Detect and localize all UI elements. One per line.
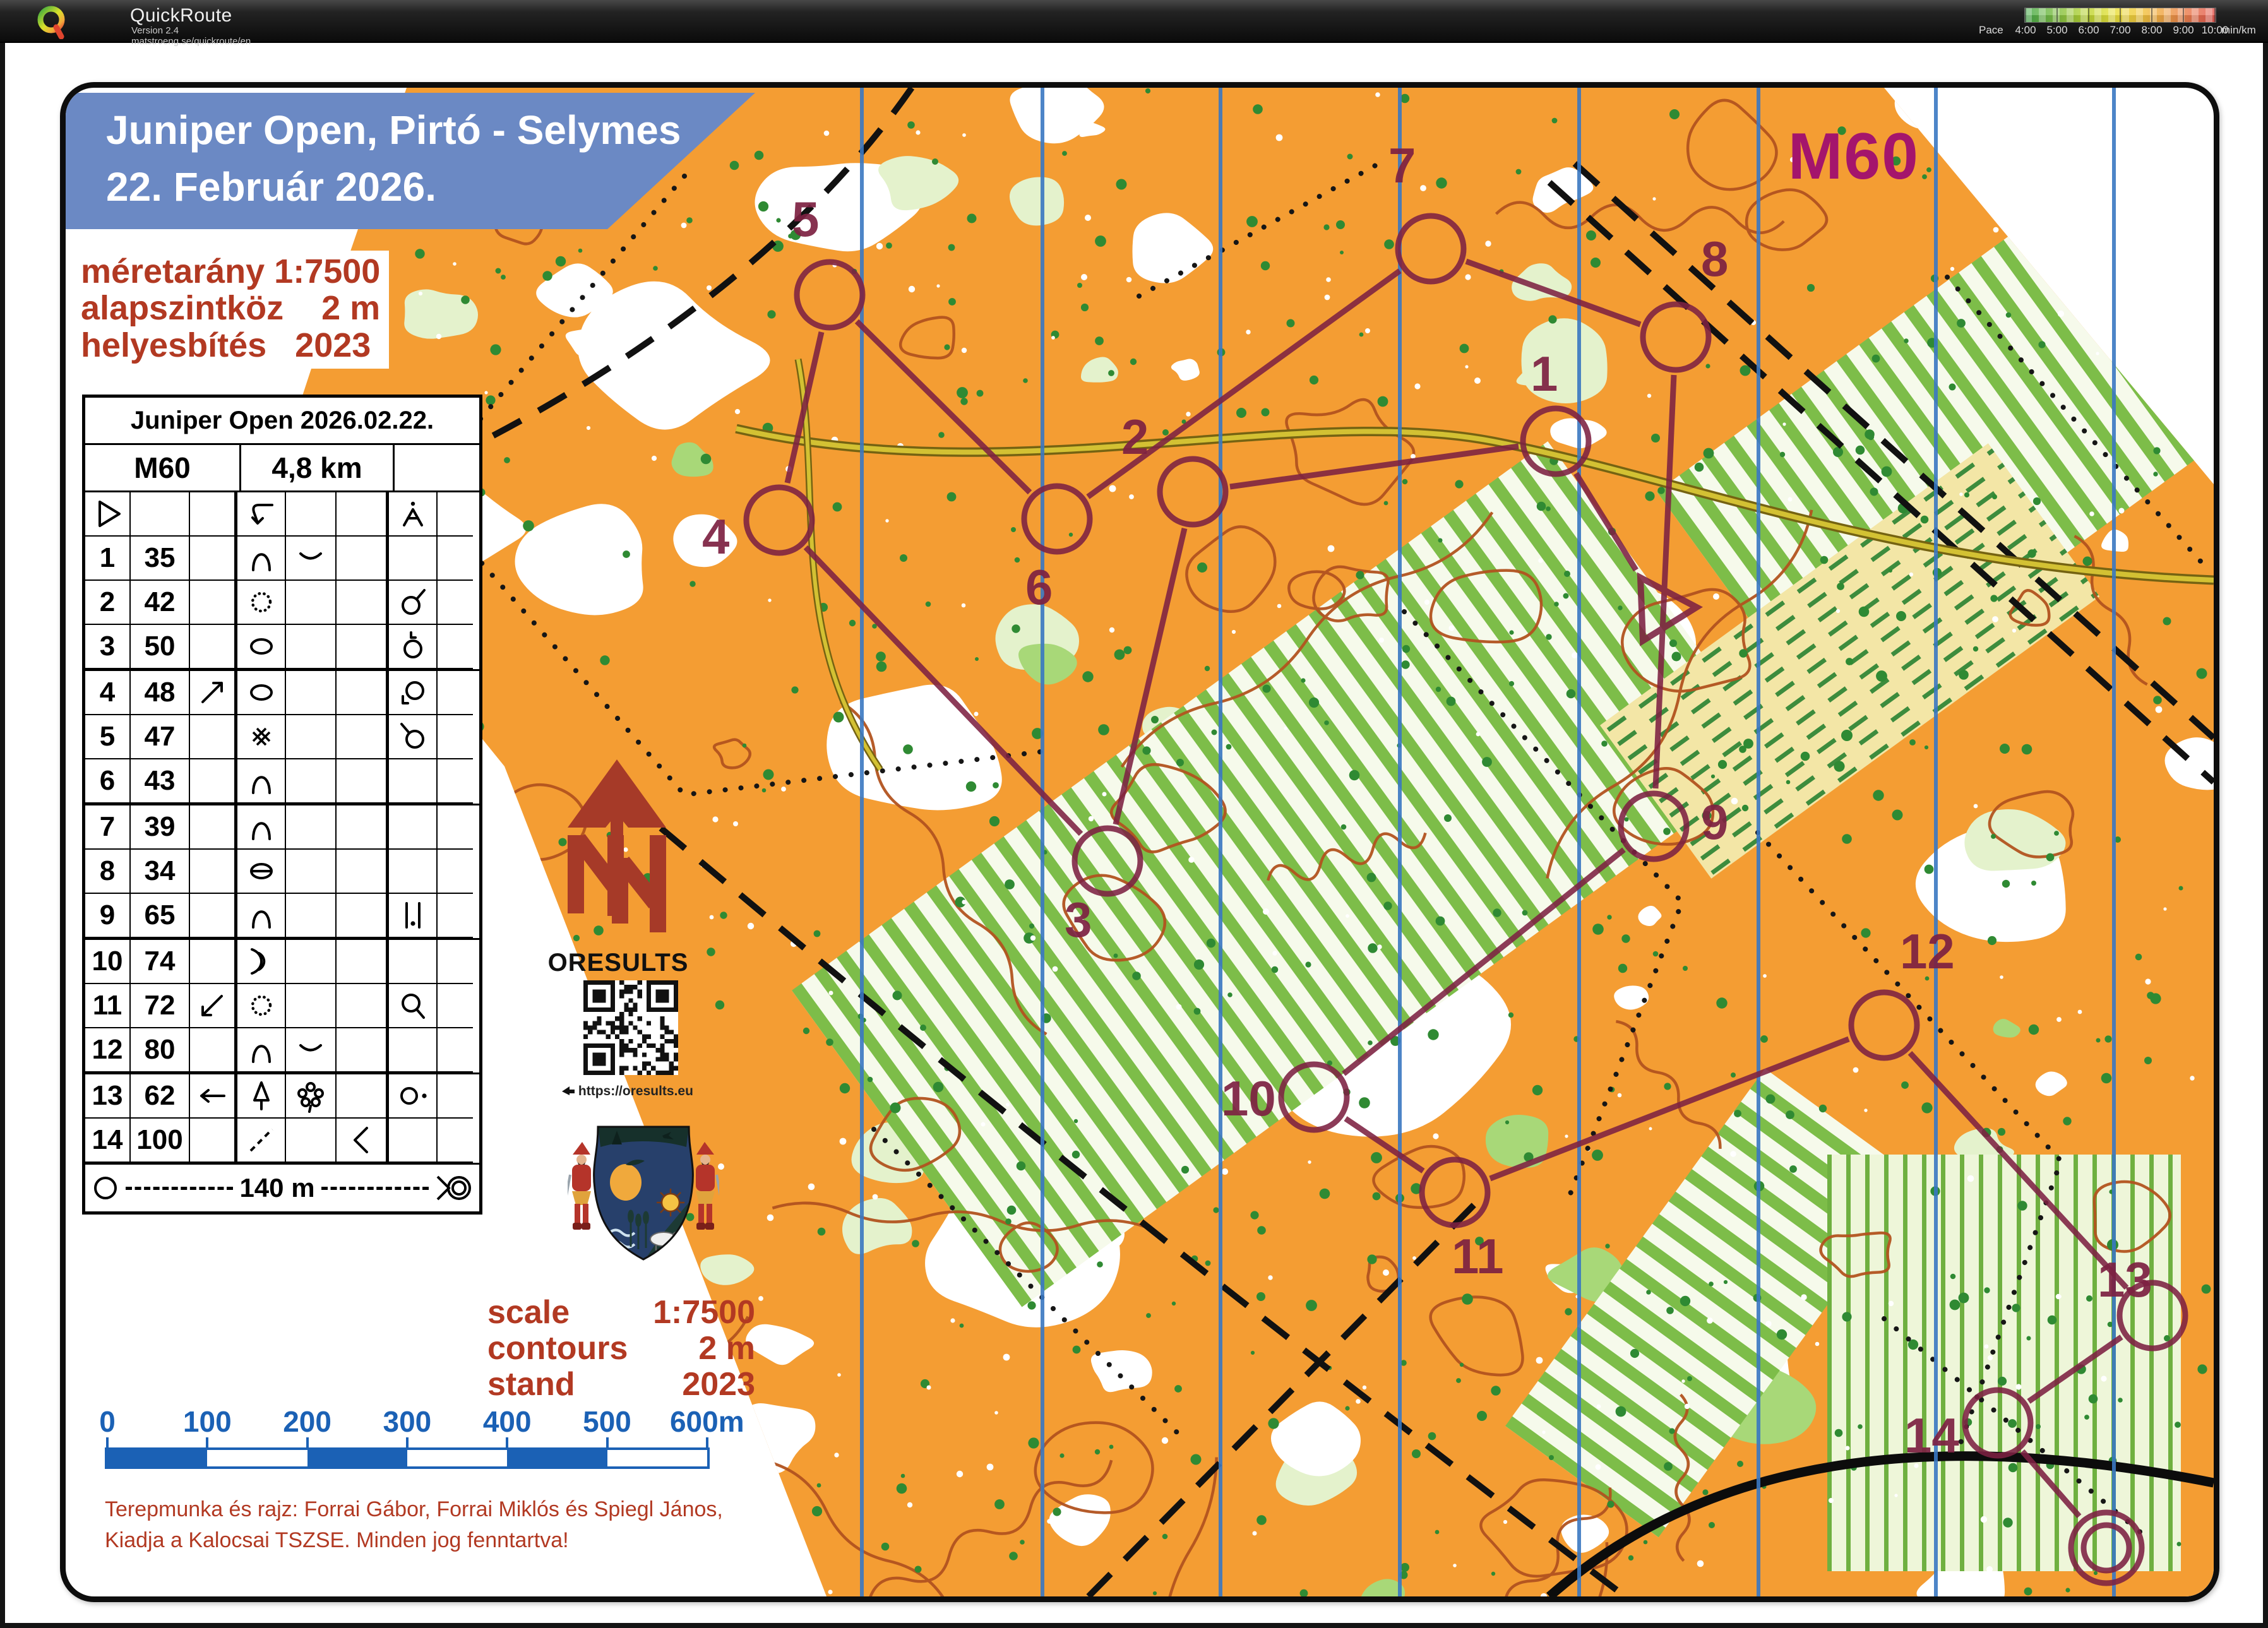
- cd-cell: [286, 805, 337, 850]
- cd-cell: 50: [131, 625, 190, 669]
- event-title: Juniper Open, Pirtó - Selymes: [106, 107, 681, 153]
- pace-tick: [2151, 8, 2152, 22]
- cd-cell: [236, 1074, 286, 1119]
- cd-length: 4,8 km: [241, 445, 395, 490]
- pace-tick-label: 4:00: [2015, 24, 2036, 37]
- cd-cell: 12: [85, 1028, 131, 1072]
- cd-symbol-tree: [244, 1079, 278, 1113]
- control-number: 6: [1025, 559, 1053, 615]
- app-url: matstroeng.se/quickroute/en: [131, 36, 251, 47]
- pace-tick: [2183, 8, 2184, 22]
- cd-cell: [286, 1028, 337, 1072]
- pace-tick: [2120, 8, 2121, 22]
- cd-symbol-depression: [294, 1033, 328, 1067]
- pace-tick-label: 5:00: [2046, 24, 2067, 37]
- cd-cell: [387, 1074, 438, 1119]
- cd-cell: [190, 1028, 236, 1072]
- cd-cell: [286, 1119, 337, 1163]
- pace-tick-label: 9:00: [2173, 24, 2193, 37]
- cd-cell: 8: [85, 850, 131, 894]
- cd-cell: [236, 492, 286, 537]
- cd-cell: [286, 1074, 337, 1119]
- pace-tick-label: 7:00: [2110, 24, 2130, 37]
- pace-unit: min/km: [2221, 24, 2256, 37]
- cd-symbol-crossing: [396, 497, 430, 531]
- cd-control-row: 14100: [85, 1119, 479, 1163]
- cd-cell: [190, 715, 236, 759]
- app-title: QuickRoute: [130, 5, 232, 27]
- cd-symbol-circ-dot: [396, 1079, 430, 1113]
- pace-tick: [2025, 8, 2026, 22]
- cd-class: M60: [85, 445, 241, 490]
- cd-cell: [286, 850, 337, 894]
- cd-cell: [236, 850, 286, 894]
- quickroute-logo-icon: [34, 4, 69, 39]
- cd-cell: [190, 581, 236, 625]
- cd-symbol-bend: [244, 497, 278, 531]
- pace-label: Pace: [1979, 24, 2003, 37]
- cd-cell: [387, 940, 438, 984]
- cd-cell: [438, 1119, 473, 1163]
- map-info-line: alapszintköz 2 m: [81, 290, 380, 326]
- cd-symbol-circ-nw: [396, 720, 430, 754]
- oresults-qr-code: [583, 980, 678, 1075]
- oresults-url: https://oresults.eu: [552, 1084, 703, 1099]
- cd-cell: [438, 581, 473, 625]
- cd-control-row: 547: [85, 715, 479, 759]
- cd-cell: 43: [131, 759, 190, 804]
- scale-bar-label: 300: [383, 1405, 432, 1439]
- control-number: 13: [2098, 1252, 2152, 1307]
- cd-cell: [337, 1119, 387, 1163]
- cd-cell: 14: [85, 1119, 131, 1163]
- cd-title: Juniper Open 2026.02.22.: [85, 398, 479, 443]
- cd-cell: [337, 1074, 387, 1119]
- cd-climb: [395, 445, 479, 490]
- cd-cell: [190, 537, 236, 581]
- cd-cell: [387, 805, 438, 850]
- cd-symbol-depression: [294, 541, 328, 575]
- course-class-label: M60: [1788, 119, 1919, 194]
- cd-start-row: [85, 492, 479, 537]
- cd-cell: [438, 537, 473, 581]
- cd-symbol-circ-sw: [396, 675, 430, 710]
- scale-bar-label: 200: [283, 1405, 331, 1439]
- pace-tick: [2056, 8, 2058, 22]
- credits-line: Kiadja a Kalocsai TSZSE. Minden jog fenn…: [105, 1525, 723, 1556]
- control-number: 4: [702, 509, 729, 564]
- cd-cell: 11: [85, 984, 131, 1028]
- cd-cell: [337, 492, 387, 537]
- cd-symbol-arrow-sw: [195, 989, 229, 1023]
- cd-cell: [337, 894, 387, 938]
- cd-cell: [286, 715, 337, 759]
- scale-bar-segment: [407, 1450, 507, 1466]
- cd-cell: 47: [131, 715, 190, 759]
- start-circle-icon: [92, 1174, 119, 1202]
- scale-bar-segment: [507, 1450, 607, 1466]
- cd-cell: [387, 894, 438, 938]
- cd-cell: [190, 625, 236, 669]
- cd-cell: 62: [131, 1074, 190, 1119]
- coat-of-arms: [568, 1120, 719, 1272]
- control-description-sheet: Juniper Open 2026.02.22.M60 4,8 km 13524…: [82, 395, 482, 1215]
- cd-cell: [438, 850, 473, 894]
- cd-cell: 100: [131, 1119, 190, 1163]
- oresults-label: ORESULTS: [546, 949, 691, 977]
- map-sheet[interactable]: 1234567891011121314 Juniper Open, Pirtó …: [60, 82, 2219, 1602]
- cd-cell: [190, 759, 236, 804]
- cd-control-row: 643: [85, 759, 479, 805]
- cd-control-row: 1362: [85, 1074, 479, 1119]
- cd-control-row: 242: [85, 581, 479, 625]
- cd-cell: [236, 940, 286, 984]
- scale-bar: 0100200300400500600m: [105, 1405, 710, 1469]
- cd-cell: [438, 894, 473, 938]
- cd-cell: 6: [85, 759, 131, 804]
- cd-cell: 65: [131, 894, 190, 938]
- cd-cell: [387, 850, 438, 894]
- cd-symbol-arrow-w: [195, 1079, 229, 1113]
- cd-cell: 42: [131, 581, 190, 625]
- cd-symbol-clearing: [244, 585, 278, 619]
- cd-cell: [438, 984, 473, 1028]
- cd-cell: [337, 940, 387, 984]
- cd-cell: 34: [131, 850, 190, 894]
- cd-symbol-hill: [244, 810, 278, 844]
- cd-control-row: 965: [85, 894, 479, 940]
- cd-cell: [85, 492, 131, 537]
- cursor-hand-icon: [562, 1085, 575, 1095]
- cd-cell: [190, 805, 236, 850]
- cd-cell: 5: [85, 715, 131, 759]
- cd-cell: [236, 625, 286, 669]
- cd-cell: 72: [131, 984, 190, 1028]
- map-info-line: scale1:7500: [487, 1295, 755, 1331]
- cd-cell: [236, 581, 286, 625]
- control-number: 8: [1701, 231, 1728, 287]
- control-number: 14: [1904, 1408, 1959, 1463]
- pace-gradient-bar: [2024, 8, 2216, 23]
- cd-cell: [236, 1028, 286, 1072]
- cd-cell: [236, 715, 286, 759]
- control-number: 2: [1121, 409, 1149, 465]
- cd-symbol-circ-se: [396, 989, 430, 1023]
- cd-cell: [236, 805, 286, 850]
- cd-cell: 10: [85, 940, 131, 984]
- scale-bar-label: 500: [583, 1405, 631, 1439]
- cd-symbol-angle-left: [344, 1123, 378, 1157]
- cd-symbol-circ-top: [396, 629, 430, 663]
- cd-symbol-thicket: [244, 720, 278, 754]
- cd-cell: [337, 625, 387, 669]
- scale-bar-segment: [207, 1450, 307, 1466]
- cd-symbol-circ-ne: [396, 585, 430, 619]
- cd-cell: 4: [85, 671, 131, 715]
- pace-tick-label: 8:00: [2141, 24, 2162, 37]
- control-number: 3: [1065, 892, 1092, 948]
- cd-symbol-start-triangle: [90, 497, 124, 531]
- cd-control-row: 834: [85, 850, 479, 894]
- pace-tick: [2088, 8, 2089, 22]
- cd-control-row: 350: [85, 625, 479, 671]
- cd-cell: [286, 581, 337, 625]
- cd-cell: [190, 671, 236, 715]
- cd-cell: [387, 671, 438, 715]
- scale-bar-label: 400: [483, 1405, 532, 1439]
- cd-cell: [286, 492, 337, 537]
- cd-cell: [438, 625, 473, 669]
- cd-cell: [131, 492, 190, 537]
- cd-symbol-between: [396, 898, 430, 932]
- cd-cell: [438, 715, 473, 759]
- cd-cell: [236, 671, 286, 715]
- map-info-english: scale1:7500contours2 mstand2023: [487, 1295, 755, 1403]
- cd-cell: [337, 984, 387, 1028]
- app-version: Version 2.4: [131, 25, 179, 36]
- cd-cell: [387, 715, 438, 759]
- map-info-line: contours2 m: [487, 1331, 755, 1367]
- scale-bar-label: 100: [183, 1405, 232, 1439]
- control-number: 5: [792, 191, 819, 247]
- cd-cell: [438, 1074, 473, 1119]
- control-number: 1: [1531, 346, 1558, 401]
- pace-tick: [2214, 8, 2216, 22]
- cd-cell: 74: [131, 940, 190, 984]
- cd-cell: [286, 940, 337, 984]
- cd-symbol-oval-line: [244, 854, 278, 888]
- cd-cell: [337, 581, 387, 625]
- cd-cell: 13: [85, 1074, 131, 1119]
- cd-cell: 3: [85, 625, 131, 669]
- scale-bar-segment: [307, 1450, 407, 1466]
- cd-cell: [438, 805, 473, 850]
- cd-cell: [286, 625, 337, 669]
- window-titlebar[interactable]: QuickRoute Version 2.4 matstroeng.se/qui…: [0, 0, 2268, 43]
- cd-cell: 39: [131, 805, 190, 850]
- cd-cell: [236, 1119, 286, 1163]
- cd-cell: 9: [85, 894, 131, 938]
- cd-cell: [438, 492, 473, 537]
- cd-cell: 80: [131, 1028, 190, 1072]
- pace-tick-label: 6:00: [2078, 24, 2099, 37]
- cd-symbol-hill: [244, 898, 278, 932]
- cd-cell: [387, 1119, 438, 1163]
- cd-cell: [387, 537, 438, 581]
- control-number: 10: [1221, 1071, 1276, 1126]
- cd-cell: [190, 984, 236, 1028]
- cd-cell: [387, 625, 438, 669]
- cd-cell: 7: [85, 805, 131, 850]
- cd-cell: [286, 984, 337, 1028]
- cd-cell: [236, 537, 286, 581]
- control-number: 7: [1388, 138, 1416, 193]
- cd-cell: [387, 492, 438, 537]
- cd-control-row: 1172: [85, 984, 479, 1028]
- cd-cell: 48: [131, 671, 190, 715]
- cd-cell: [337, 805, 387, 850]
- cd-control-row: 1074: [85, 940, 479, 984]
- scale-bar-segment: [607, 1450, 707, 1466]
- map-info-line: méretarány 1:7500: [81, 253, 380, 290]
- cd-control-row: 448: [85, 671, 479, 715]
- cd-symbol-hill: [244, 1033, 278, 1067]
- scale-bar-label: 600m: [670, 1405, 744, 1439]
- cd-symbol-arrow-ne: [195, 675, 229, 710]
- cd-cell: [438, 1028, 473, 1072]
- map-credits: Terepmunka és rajz: Forrai Gábor, Forrai…: [105, 1494, 723, 1557]
- control-number: 9: [1701, 794, 1728, 850]
- cd-finish-distance: 140 m: [239, 1173, 314, 1203]
- cd-symbol-dash-diag: [244, 1123, 278, 1157]
- cd-finish-row: 140 m: [85, 1163, 479, 1211]
- cd-control-row: 739: [85, 805, 479, 850]
- cd-cell: [438, 671, 473, 715]
- cd-cell: [286, 537, 337, 581]
- cd-cell: [236, 984, 286, 1028]
- map-info-line: helyesbítés 2023: [81, 327, 380, 364]
- cd-cell: 1: [85, 537, 131, 581]
- cd-symbol-hill: [244, 541, 278, 575]
- cd-cell: [190, 850, 236, 894]
- finish-circles-icon: [435, 1173, 473, 1203]
- cd-cell: [190, 1074, 236, 1119]
- control-number: 12: [1900, 924, 1955, 979]
- cd-cell: [337, 715, 387, 759]
- cd-cell: [387, 984, 438, 1028]
- cd-symbol-oval: [244, 629, 278, 663]
- scale-bar-label: 0: [99, 1405, 116, 1439]
- cd-control-row: 1280: [85, 1028, 479, 1074]
- cd-cell: [337, 850, 387, 894]
- cd-cell: [236, 894, 286, 938]
- cd-cell: [387, 759, 438, 804]
- map-info-hungarian: méretarány 1:7500alapszintköz 2 mhelyesb…: [75, 251, 389, 369]
- cd-symbol-clearing: [244, 989, 278, 1023]
- pace-tick-labels: 4:005:006:007:008:009:0010:00: [2024, 24, 2215, 37]
- cd-symbol-oval: [244, 675, 278, 710]
- cd-cell: [337, 671, 387, 715]
- map-canvas[interactable]: 1234567891011121314 Juniper Open, Pirtó …: [5, 43, 2263, 1623]
- cd-cell: [337, 1028, 387, 1072]
- cd-cell: [190, 894, 236, 938]
- cd-cell: [387, 581, 438, 625]
- scale-bar-segment: [107, 1450, 207, 1466]
- credits-line: Terepmunka és rajz: Forrai Gábor, Forrai…: [105, 1494, 723, 1525]
- control-number: 11: [1452, 1228, 1503, 1284]
- cd-cell: [286, 671, 337, 715]
- pace-legend: 4:005:006:007:008:009:0010:00 Pace min/k…: [1961, 5, 2258, 39]
- cd-cell: [438, 759, 473, 804]
- cd-cell: [190, 940, 236, 984]
- cd-symbol-reentrant: [244, 944, 278, 978]
- cd-symbol-hill: [244, 764, 278, 798]
- cd-cell: [337, 759, 387, 804]
- club-arrow-logo-icon: [563, 758, 671, 941]
- cd-cell: [236, 759, 286, 804]
- cd-cell: [190, 492, 236, 537]
- cd-cell: [286, 759, 337, 804]
- cd-cell: [438, 940, 473, 984]
- cd-cell: [286, 894, 337, 938]
- cd-cell: [337, 537, 387, 581]
- cd-cell: 2: [85, 581, 131, 625]
- map-info-line: stand2023: [487, 1367, 755, 1403]
- event-date: 22. Február 2026.: [106, 163, 436, 210]
- cd-cell: [387, 1028, 438, 1072]
- cd-symbol-flower: [294, 1079, 328, 1113]
- cd-control-row: 135: [85, 537, 479, 581]
- cd-cell: [190, 1119, 236, 1163]
- cd-cell: 35: [131, 537, 190, 581]
